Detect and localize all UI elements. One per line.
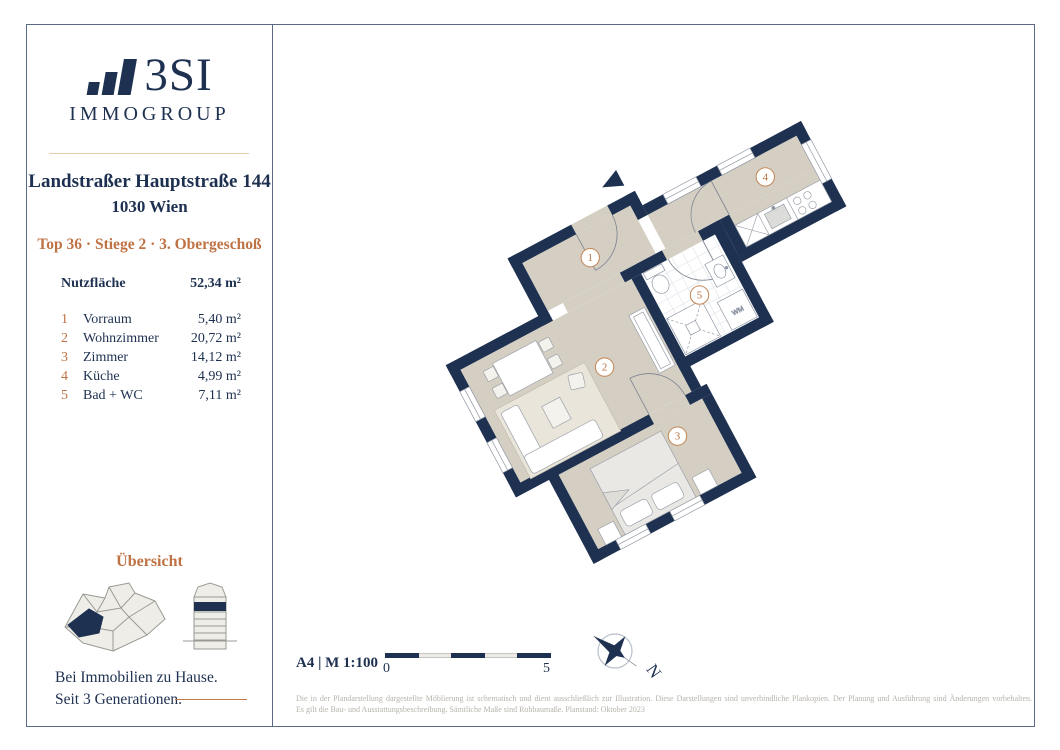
scale-bar <box>385 653 551 658</box>
overview-building-elevation <box>179 581 241 659</box>
scale-bar-end: 5 <box>543 661 550 677</box>
room-area: 7,11 m² <box>198 386 241 405</box>
badge-kueche: 4 <box>763 171 769 183</box>
north-label: N <box>642 661 665 682</box>
table-row: 5 Bad + WC 7,11 m² <box>61 386 241 405</box>
property-address: Landstraßer Hauptstraße 144 <box>27 171 272 193</box>
room-name: Küche <box>83 367 198 386</box>
room-name: Vorraum <box>83 310 198 329</box>
room-number: 5 <box>61 386 83 405</box>
sidebar-divider-line <box>272 24 273 726</box>
area-header-value: 52,34 m² <box>190 275 241 293</box>
disclaimer: Die in der Plandarstellung dargestellte … <box>296 693 1032 715</box>
tagline-line2: Seit 3 Generationen. <box>55 689 218 711</box>
tagline-accent-rule <box>175 699 247 700</box>
room-name: Wohnzimmer <box>83 329 191 348</box>
sidebar: 3SI IMMOGROUP Landstraßer Hauptstraße 14… <box>27 25 272 725</box>
room-name: Bad + WC <box>83 386 198 405</box>
room-area: 4,99 m² <box>198 367 241 386</box>
overview-title: Übersicht <box>27 553 272 571</box>
room-number: 1 <box>61 310 83 329</box>
entrance-arrow-icon <box>598 170 624 195</box>
floorplan-document-page: 3SI IMMOGROUP Landstraßer Hauptstraße 14… <box>0 0 1060 750</box>
overview-footprint-map <box>55 581 171 659</box>
room-number: 2 <box>61 329 83 348</box>
badge-wohnzimmer: 2 <box>602 362 607 374</box>
area-table: Nutzfläche 52,34 m² 1 Vorraum 5,40 m² 2 … <box>61 275 241 405</box>
room-area: 20,72 m² <box>191 329 241 348</box>
table-row: 2 Wohnzimmer 20,72 m² <box>61 329 241 348</box>
room-name: Zimmer <box>83 348 191 367</box>
company-logo: 3SI IMMOGROUP <box>27 53 272 126</box>
logo-bars-icon <box>86 53 138 95</box>
disclaimer-line2: Es gilt die Bau- und Ausstattungsbeschre… <box>296 704 1032 715</box>
area-table-header: Nutzfläche 52,34 m² <box>61 275 241 293</box>
armchair <box>568 372 586 390</box>
compass-rose: N <box>583 623 675 687</box>
badge-bad-wc: 5 <box>697 289 703 301</box>
area-header-label: Nutzfläche <box>61 275 190 293</box>
room-area: 14,12 m² <box>191 348 241 367</box>
badge-zimmer: 3 <box>675 431 681 443</box>
brand-tagline: Bei Immobilien zu Hause. Seit 3 Generati… <box>55 667 218 711</box>
room-area: 5,40 m² <box>198 310 241 329</box>
room-number: 3 <box>61 348 83 367</box>
table-row: 3 Zimmer 14,12 m² <box>61 348 241 367</box>
badge-vorraum: 1 <box>588 252 593 264</box>
property-city: 1030 Wien <box>27 197 272 217</box>
logo-divider-rule <box>49 153 249 154</box>
logo-text: 3SI <box>144 55 212 95</box>
north-needle-icon <box>583 623 646 681</box>
disclaimer-line1: Die in der Plandarstellung dargestellte … <box>296 693 1032 704</box>
scale-bar-start: 0 <box>383 661 390 677</box>
table-row: 1 Vorraum 5,40 m² <box>61 310 241 329</box>
format-scale-label: A4 | M 1:100 <box>296 655 378 672</box>
room-number: 4 <box>61 367 83 386</box>
logo-subtitle: IMMOGROUP <box>27 103 272 126</box>
highlighted-floor <box>194 602 226 611</box>
floor-plan-drawing: WM 1 <box>282 26 1038 642</box>
unit-info: Top 36 · Stiege 2 · 3. Obergeschoß <box>27 236 272 254</box>
tagline-line1: Bei Immobilien zu Hause. <box>55 667 218 689</box>
table-row: 4 Küche 4,99 m² <box>61 367 241 386</box>
